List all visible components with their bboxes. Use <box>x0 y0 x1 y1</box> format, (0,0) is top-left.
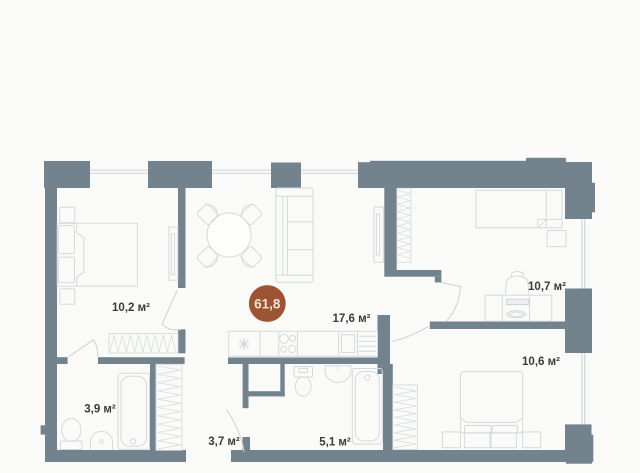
svg-text:3,9 м²: 3,9 м² <box>84 404 116 416</box>
svg-text:17,6 м²: 17,6 м² <box>333 313 371 325</box>
svg-text:3,7 м²: 3,7 м² <box>208 436 240 448</box>
svg-text:10,2 м²: 10,2 м² <box>112 302 150 314</box>
svg-text:61,8: 61,8 <box>254 296 281 311</box>
svg-text:5,1 м²: 5,1 м² <box>319 437 351 449</box>
svg-text:10,7 м²: 10,7 м² <box>528 281 566 293</box>
svg-text:10,6 м²: 10,6 м² <box>522 356 560 368</box>
